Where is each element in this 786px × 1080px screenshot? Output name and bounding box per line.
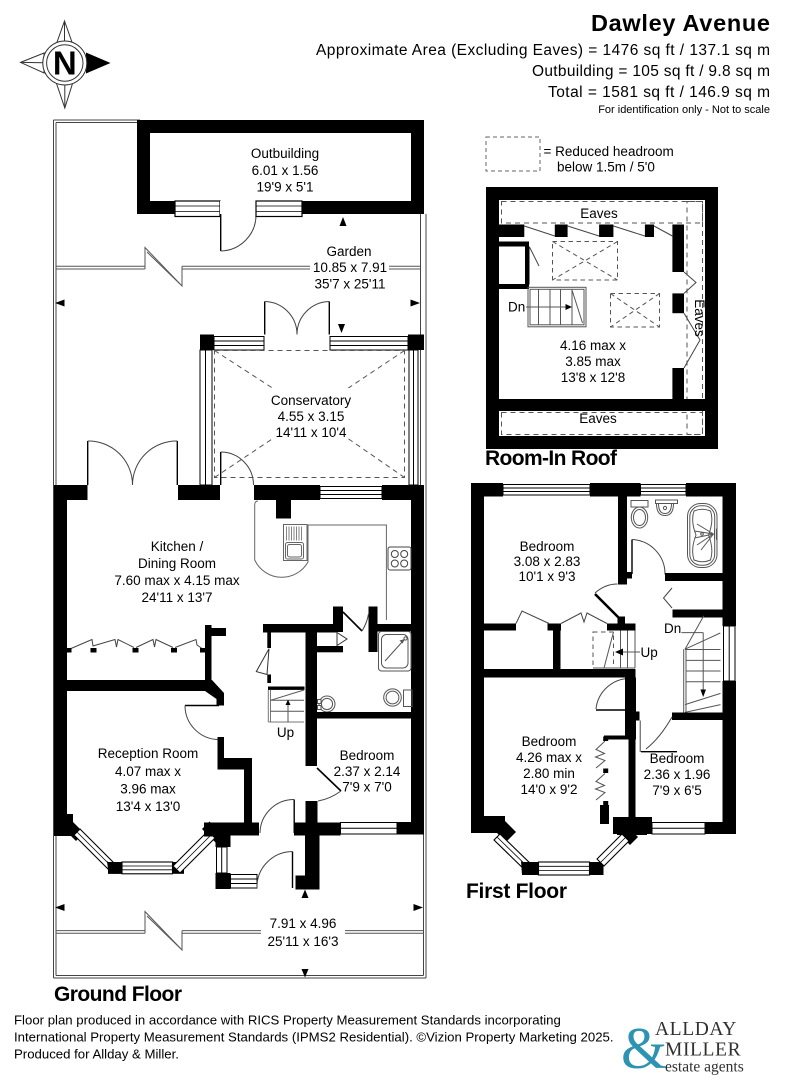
svg-text:Dawley Avenue: Dawley Avenue [591, 10, 770, 36]
svg-text:For identification only - Not: For identification only - Not to scale [598, 104, 770, 116]
svg-text:MILLER: MILLER [665, 1040, 741, 1061]
svg-text:7.60 max x 4.15 max: 7.60 max x 4.15 max [114, 573, 240, 588]
svg-text:19'9 x 5'1: 19'9 x 5'1 [257, 180, 314, 195]
svg-text:3.96 max: 3.96 max [120, 782, 176, 797]
svg-text:Up: Up [277, 725, 294, 740]
svg-text:4.16 max x: 4.16 max x [560, 338, 626, 353]
svg-text:Dining Room: Dining Room [138, 556, 216, 571]
svg-text:24'11 x 13'7: 24'11 x 13'7 [142, 590, 213, 605]
svg-text:ALLDAY: ALLDAY [655, 1019, 737, 1040]
svg-text:N: N [53, 45, 77, 82]
svg-text:Conservatory: Conservatory [271, 393, 352, 408]
svg-text:2.80 min: 2.80 min [523, 766, 575, 781]
svg-text:Ground Floor: Ground Floor [54, 983, 182, 1006]
svg-text:Outbuilding = 105 sq ft / 9.8: Outbuilding = 105 sq ft / 9.8 sq m [532, 63, 770, 80]
svg-text:Eaves: Eaves [579, 411, 617, 426]
svg-text:Garden: Garden [326, 244, 371, 259]
svg-text:Eaves: Eaves [580, 206, 618, 221]
svg-text:10.85 x 7.91: 10.85 x 7.91 [313, 260, 387, 275]
svg-text:International Property Measure: International Property Measurement Stand… [14, 1030, 614, 1045]
svg-text:Produced for Allday & Miller.: Produced for Allday & Miller. [14, 1047, 179, 1062]
svg-text:Room-In Roof: Room-In Roof [485, 447, 618, 470]
svg-text:14'0 x 9'2: 14'0 x 9'2 [521, 782, 578, 797]
svg-text:Floor plan produced in accorda: Floor plan produced in accordance with R… [14, 1013, 561, 1028]
svg-text:14'11 x 10'4: 14'11 x 10'4 [276, 425, 347, 440]
svg-text:2.36 x 1.96: 2.36 x 1.96 [644, 767, 711, 782]
svg-text:Bedroom: Bedroom [520, 539, 575, 554]
svg-text:10'1 x 9'3: 10'1 x 9'3 [519, 569, 576, 584]
svg-text:13'4 x 13'0: 13'4 x 13'0 [116, 799, 180, 814]
svg-text:Bedroom: Bedroom [340, 748, 395, 763]
svg-text:Kitchen /: Kitchen / [151, 539, 204, 554]
svg-text:4.26 max x: 4.26 max x [516, 750, 582, 765]
svg-text:3.08 x 2.83: 3.08 x 2.83 [514, 554, 581, 569]
svg-text:Approximate Area (Excluding Ea: Approximate Area (Excluding Eaves) = 147… [316, 42, 770, 59]
svg-text:6.01 x 1.56: 6.01 x 1.56 [252, 163, 319, 178]
svg-text:7'9 x 6'5: 7'9 x 6'5 [652, 783, 701, 798]
svg-text:3.85 max: 3.85 max [565, 354, 621, 369]
svg-text:Bedroom: Bedroom [650, 751, 705, 766]
svg-text:7.91 x 4.96: 7.91 x 4.96 [270, 916, 337, 931]
svg-text:2.37 x 2.14: 2.37 x 2.14 [334, 764, 401, 779]
svg-text:4.55 x 3.15: 4.55 x 3.15 [278, 409, 345, 424]
svg-text:= Reduced headroom: = Reduced headroom [544, 144, 674, 159]
svg-text:Dn: Dn [664, 621, 681, 636]
svg-text:Bedroom: Bedroom [522, 734, 577, 749]
svg-text:Eaves: Eaves [692, 299, 707, 337]
svg-text:Reception Room: Reception Room [98, 746, 199, 761]
svg-text:Up: Up [641, 645, 658, 660]
svg-text:Dn: Dn [508, 300, 525, 315]
svg-text:7'9 x 7'0: 7'9 x 7'0 [342, 780, 391, 795]
svg-text:First Floor: First Floor [466, 880, 567, 903]
svg-text:25'11 x 16'3: 25'11 x 16'3 [268, 934, 339, 949]
svg-text:Outbuilding: Outbuilding [251, 146, 319, 161]
svg-text:35'7 x 25'11: 35'7 x 25'11 [315, 277, 386, 292]
svg-text:estate agents: estate agents [665, 1059, 744, 1076]
svg-text:Total = 1581 sq ft / 146.9 sq: Total = 1581 sq ft / 146.9 sq m [548, 84, 770, 101]
svg-text:4.07 max x: 4.07 max x [115, 764, 181, 779]
svg-text:below 1.5m / 5'0: below 1.5m / 5'0 [557, 160, 655, 175]
svg-text:13'8 x 12'8: 13'8 x 12'8 [561, 370, 625, 385]
